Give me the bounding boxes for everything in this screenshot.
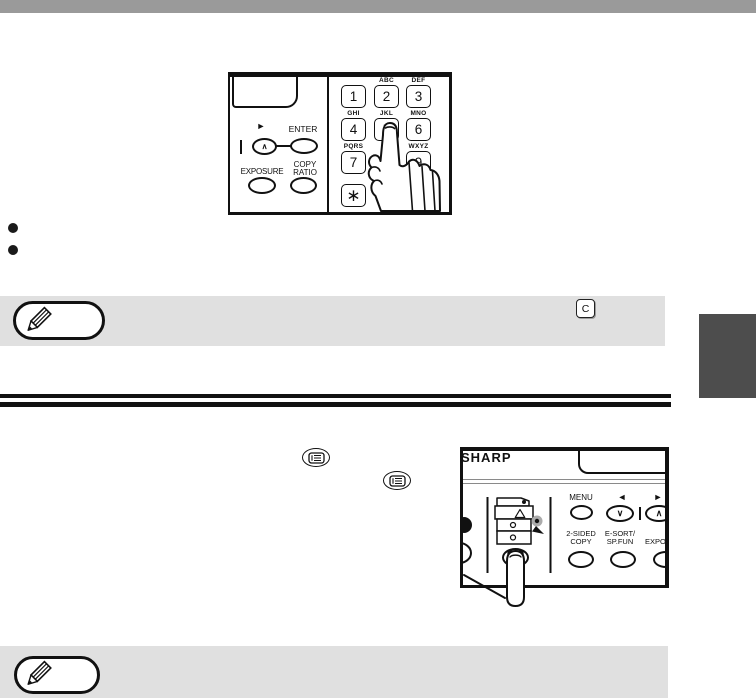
panel-display-outline bbox=[578, 447, 666, 474]
pencil-icon bbox=[22, 305, 54, 337]
menu-key-glyph bbox=[389, 475, 406, 487]
chevron-down-icon: ∨ bbox=[617, 508, 624, 519]
chapter-side-tab bbox=[699, 314, 756, 398]
section-divider-rule-bottom bbox=[0, 402, 671, 407]
key-letters: DEF bbox=[412, 77, 426, 84]
key-digit: 9 bbox=[415, 155, 423, 170]
menu-key-glyph bbox=[308, 452, 325, 464]
left-arrow-icon: ◄ bbox=[615, 493, 629, 502]
scroll-down-key: ∨ bbox=[606, 505, 634, 522]
key-digit: 1 bbox=[350, 89, 358, 104]
pencil-icon bbox=[22, 659, 54, 691]
key-digit: 4 bbox=[350, 122, 358, 137]
menu-key bbox=[570, 505, 593, 520]
figure-border-top bbox=[460, 447, 669, 451]
numeric-key-9: 9WXYZ bbox=[406, 151, 431, 174]
esort-label-line2: SP.FUN bbox=[597, 538, 643, 546]
numeric-key-4: 4GHI bbox=[341, 118, 366, 141]
numeric-key-1: 1 bbox=[341, 85, 366, 108]
menu-key-glyph bbox=[507, 550, 524, 562]
copy-ratio-key bbox=[290, 177, 317, 194]
keypad-figure-frame: ► ENTER ∧ / EXPOSURE COPY RATIO 1 2ABC 3… bbox=[228, 72, 452, 215]
exposure-key bbox=[248, 177, 276, 194]
key-letters: GHI bbox=[347, 110, 359, 117]
key-letters: PQRS bbox=[344, 143, 364, 150]
numeric-key-3: 3DEF bbox=[406, 85, 431, 108]
note-badge bbox=[14, 656, 100, 694]
right-arrow-icon: ► bbox=[254, 122, 268, 131]
enter-label: ENTER bbox=[281, 125, 325, 134]
numeric-key-6: 6MNO bbox=[406, 118, 431, 141]
panel-seam-line bbox=[460, 479, 669, 480]
key-letters: WXYZ bbox=[409, 143, 429, 150]
key-digit: 3 bbox=[415, 89, 423, 104]
figure-border-right bbox=[449, 72, 452, 215]
copy-ratio-label-line2: RATIO bbox=[285, 169, 325, 177]
callout-connector-line bbox=[276, 145, 291, 147]
esort-spfun-key bbox=[610, 551, 636, 568]
figure-border-bottom bbox=[460, 585, 669, 588]
menu-label: MENU bbox=[560, 494, 602, 502]
note-box bbox=[0, 646, 668, 698]
page-header-bar bbox=[0, 0, 756, 13]
key-separator-bar bbox=[240, 140, 242, 154]
manual-page: { "page": {"width": 756, "height": 698},… bbox=[0, 0, 756, 698]
bullet-marker: ● bbox=[8, 223, 18, 233]
figure-border-left bbox=[228, 72, 230, 215]
scroll-up-key: ∧ bbox=[252, 138, 277, 155]
key-letters: JKL bbox=[380, 110, 393, 117]
section-divider-rule-top bbox=[0, 394, 671, 398]
panel-figure: SHARP MENU ◄ ► ∨ ∧ 2- bbox=[460, 447, 669, 588]
key-letters: MNO bbox=[410, 110, 426, 117]
key-digit: 2 bbox=[383, 89, 391, 104]
key-digit: 7 bbox=[350, 155, 358, 170]
figure-border-right bbox=[665, 447, 669, 588]
at-key-label: @.-_ bbox=[405, 175, 433, 182]
two-sided-copy-key bbox=[568, 551, 594, 568]
key-digit: 6 bbox=[415, 122, 423, 137]
exposure-label: EXPOSURE bbox=[234, 168, 290, 176]
note-box: C bbox=[0, 296, 665, 346]
numeric-key-7: 7PQRS bbox=[341, 151, 366, 174]
clear-key-icon: C bbox=[576, 299, 595, 318]
clear-key-label: C bbox=[582, 303, 590, 315]
numeric-key-5: 5JKL bbox=[374, 118, 399, 141]
bullet-marker: ● bbox=[8, 245, 18, 255]
figure-border-top bbox=[228, 72, 452, 77]
key-digit: 5 bbox=[383, 122, 391, 137]
star-key: ∗ bbox=[341, 184, 366, 207]
chevron-up-icon: ∧ bbox=[262, 142, 268, 151]
keypad-figure: ► ENTER ∧ / EXPOSURE COPY RATIO 1 2ABC 3… bbox=[228, 72, 452, 215]
copy-ratio-label: COPY RATIO bbox=[285, 161, 325, 176]
menu-key-icon bbox=[302, 448, 330, 467]
esort-spfun-label: E-SORT/ SP.FUN bbox=[597, 530, 643, 546]
menu-key-icon bbox=[383, 471, 411, 490]
panel-seam-line bbox=[460, 483, 669, 484]
right-arrow-icon: ► bbox=[651, 493, 665, 502]
figure-border-left bbox=[460, 447, 463, 588]
panel-figure-frame: SHARP MENU ◄ ► ∨ ∧ 2- bbox=[460, 447, 669, 588]
key-separator-bar bbox=[639, 507, 641, 520]
copy-menu-key-pressed bbox=[502, 548, 529, 567]
lcd-display bbox=[232, 77, 298, 108]
enter-key bbox=[290, 138, 318, 154]
note-badge bbox=[13, 301, 105, 340]
key-letters: ABC bbox=[379, 77, 394, 84]
sharp-logo: SHARP bbox=[461, 451, 512, 464]
star-icon: ∗ bbox=[346, 186, 360, 206]
numeric-key-2: 2ABC bbox=[374, 85, 399, 108]
panel-divider-line bbox=[327, 77, 329, 212]
figure-border-bottom bbox=[228, 212, 452, 215]
chevron-up-icon: ∧ bbox=[656, 508, 663, 519]
